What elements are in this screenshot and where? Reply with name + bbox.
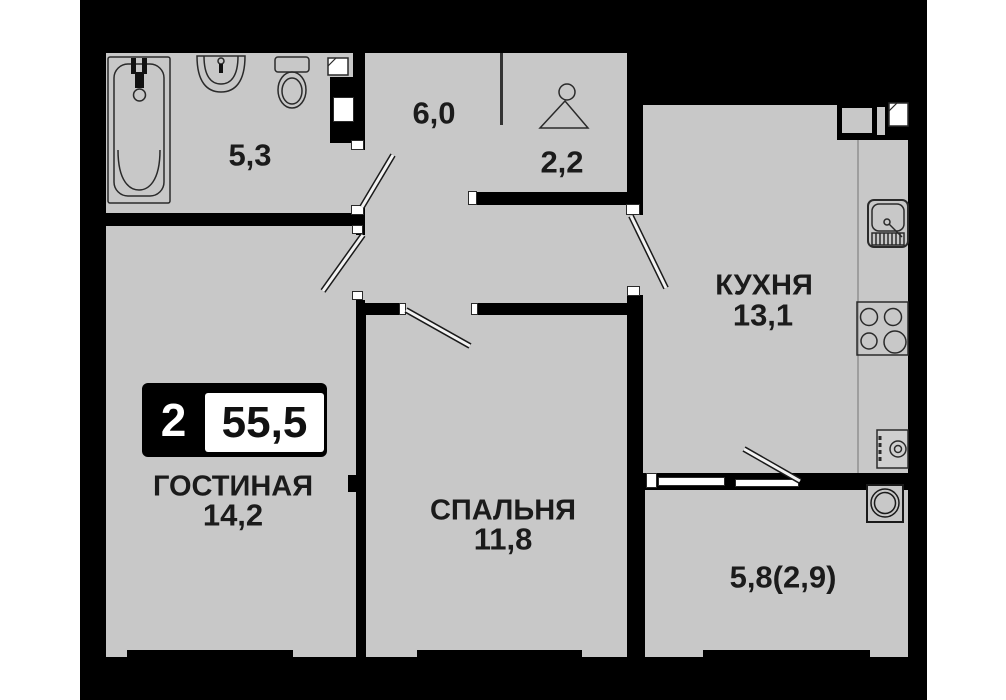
- bathroom-door-leaf: [362, 155, 393, 207]
- badge-rooms-count: 2: [142, 383, 205, 457]
- balcony-area-label: 5,8(2,9): [730, 562, 837, 593]
- living-door-leaf: [323, 235, 363, 291]
- floor-plan: 5,3 6,0 2,2 КУХНЯ 13,1 ГОСТИНАЯ 14,2 СПА…: [80, 0, 927, 700]
- kitchen-sink-icon: [868, 200, 908, 247]
- hallway-area-label: 6,0: [412, 98, 455, 129]
- badge-area-box: 55,5: [205, 393, 324, 452]
- sink-icon: [197, 56, 245, 92]
- washer-icon: [867, 485, 903, 522]
- kitchen-door-leaf: [631, 216, 666, 288]
- living-area-label: 14,2: [203, 500, 263, 531]
- toilet-icon: [275, 57, 309, 108]
- hanger-icon: [540, 84, 588, 128]
- water-heater-icon: [877, 430, 908, 468]
- kitchen-name-label: КУХНЯ: [715, 272, 813, 301]
- bedroom-area-label: 11,8: [474, 524, 533, 555]
- bathtub-icon: [108, 57, 170, 203]
- stove-icon: [857, 302, 908, 355]
- badge-total-area: 55,5: [222, 401, 308, 445]
- shelf-icon: [328, 58, 348, 75]
- apartment-badge: 2 55,5: [142, 383, 327, 457]
- bedroom-door-leaf: [406, 310, 470, 346]
- page-background: 5,3 6,0 2,2 КУХНЯ 13,1 ГОСТИНАЯ 14,2 СПА…: [0, 0, 1006, 700]
- wardrobe-area-label: 2,2: [540, 147, 583, 178]
- bathroom-area-label: 5,3: [228, 140, 271, 171]
- balcony-door-leaf: [744, 449, 800, 481]
- shelf-icon: [889, 103, 908, 126]
- fixtures-layer: [80, 0, 927, 700]
- kitchen-area-label: 13,1: [733, 300, 793, 331]
